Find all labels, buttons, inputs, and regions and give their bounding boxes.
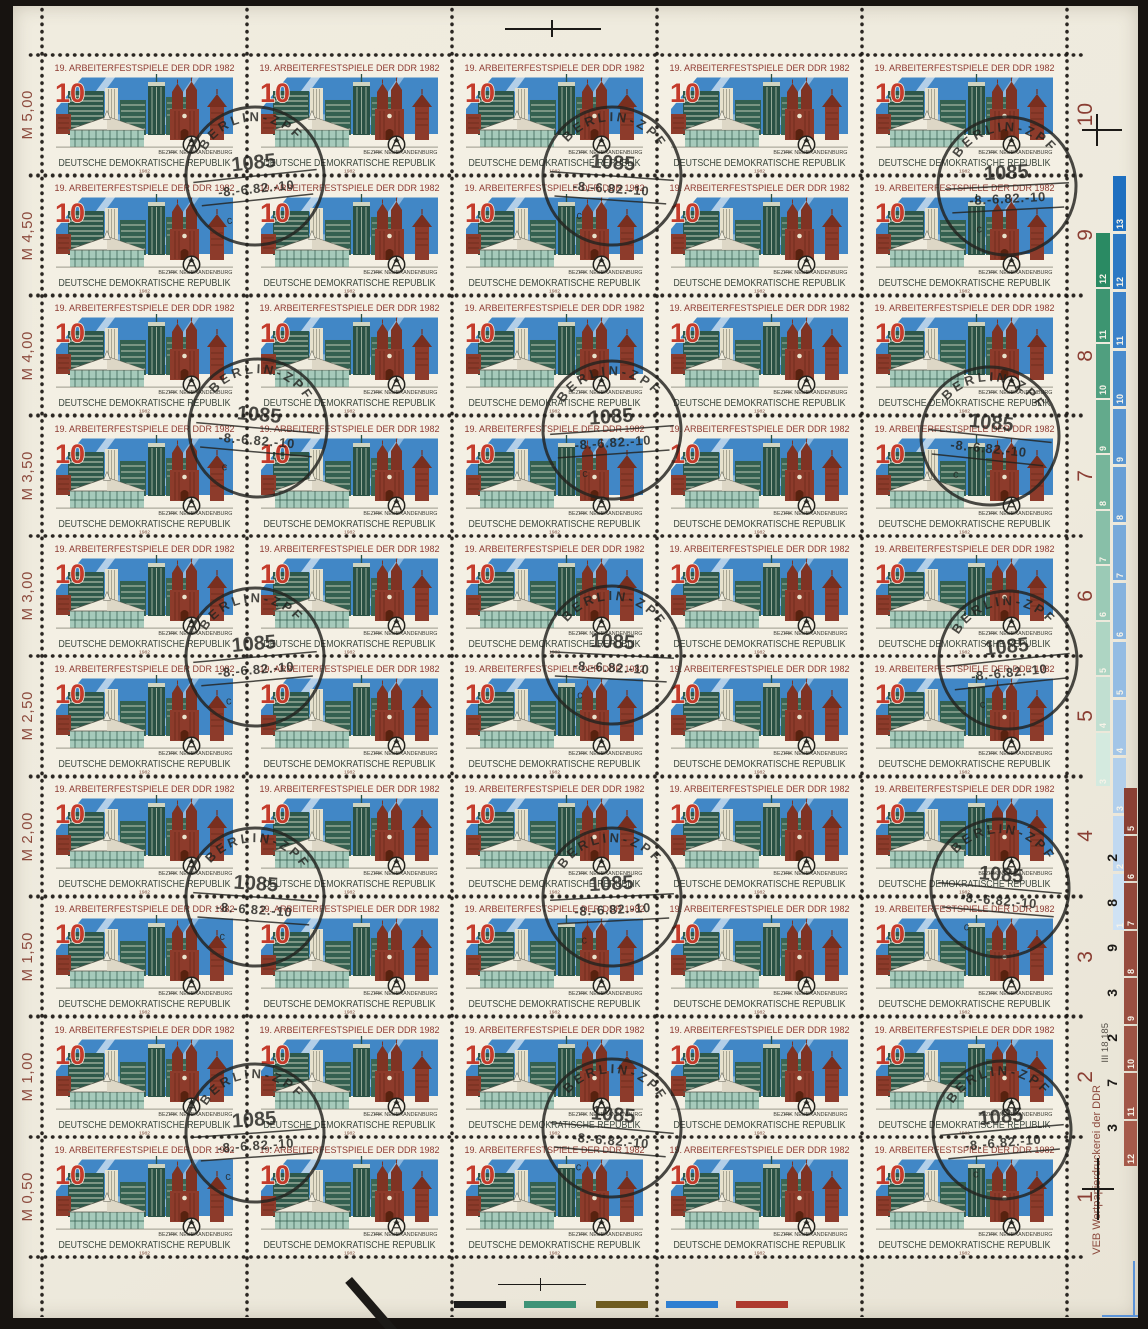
blue-control-strip-number: 3 [1115, 806, 1125, 811]
postmark-art: BERLIN-ZPF 1085 -8.-6.82.-10 c [921, 1049, 1084, 1212]
stamp-denomination: 10 [55, 919, 85, 949]
stamp-district-label: BEZIRK NEUBRANDENBURG [773, 751, 847, 757]
postmark-date: -8.-6.82.-10 [969, 189, 1046, 208]
margin-value-label: M 4,50 [14, 175, 40, 295]
red-control-strip-segment: 9 [1124, 978, 1137, 1024]
stamp-denomination: 10 [465, 198, 495, 228]
color-bar-black [454, 1301, 506, 1308]
registration-cross-bar [551, 20, 553, 37]
green-control-strip-number: 11 [1098, 330, 1108, 340]
postmark-art: BERLIN-ZPF 1085 -8.-6.82.-10 c [531, 1047, 694, 1210]
row-number-text: 8 [1074, 350, 1098, 362]
stamp-country-label: DEUTSCHE DEMOKRATISCHE REPUBLIK [59, 1240, 231, 1251]
stamp-denomination: 10 [465, 799, 495, 829]
postmark-date: -8.-6.82.-10 [217, 659, 295, 681]
margin-value-text: M 5,00 [19, 90, 36, 139]
postmark-town: BERLIN-ZPF [558, 105, 672, 151]
press-digit-text: 7 [1104, 1079, 1120, 1087]
postmark-town: BERLIN-ZPF [552, 359, 666, 405]
stamp-title: 19. ARBEITERFESTSPIELE DER DDR 1982 [465, 783, 645, 794]
blue-control-strip-segment: 9 [1113, 409, 1126, 464]
postmark-town: BERLIN-ZPF [553, 827, 667, 872]
postmark-postcode: 1085 [590, 151, 636, 176]
postmark-index-letter: c [976, 223, 983, 235]
stamp-denomination: 10 [55, 198, 85, 228]
postmark-index-letter: c [973, 1168, 980, 1180]
green-control-strip-segment: 9 [1096, 400, 1110, 454]
postmark-town-text: BERLIN-ZPF [194, 585, 309, 633]
margin-value-label: M 1,50 [14, 896, 40, 1016]
postmark-cancellation: BERLIN-ZPF 1085 -8.-6.82.-10 c [173, 94, 338, 259]
postmark-town: BERLIN-ZPF [201, 826, 315, 872]
stamp-country-label: DEUTSCHE DEMOKRATISCHE REPUBLIK [469, 759, 641, 770]
margin-value-label: M 1,00 [14, 1017, 40, 1137]
stamp: 19. ARBEITERFESTSPIELE DER DDR 1982 [657, 1137, 862, 1257]
stamp-denomination: 10 [55, 679, 85, 709]
postmark-cancellation: BERLIN-ZPF 1085 -8.-6.82.-10 c [926, 578, 1091, 743]
stamp-title: 19. ARBEITERFESTSPIELE DER DDR 1982 [875, 543, 1055, 554]
postmark-index-letter: c [577, 689, 584, 701]
row-number-text: 3 [1074, 951, 1098, 963]
stamp-title: 19. ARBEITERFESTSPIELE DER DDR 1982 [875, 1024, 1055, 1035]
postmark-art: BERLIN-ZPF 1085 -8.-6.82.-10 c [926, 578, 1091, 743]
red-control-strip-number: 5 [1126, 826, 1136, 831]
green-control-strip-segment: 6 [1096, 566, 1110, 620]
postmark-postcode: 1085 [231, 631, 277, 657]
postmark-postcode: 1085 [983, 634, 1030, 661]
red-control-strip-number: 12 [1126, 1154, 1136, 1164]
stamp-country-label: DEUTSCHE DEMOKRATISCHE REPUBLIK [674, 759, 846, 770]
press-digit-text: 2 [1104, 1034, 1120, 1042]
stamp-district-label: BEZIRK NEUBRANDENBURG [978, 751, 1052, 757]
stamp-denomination: 10 [55, 559, 85, 589]
margin-value-text: M 2,50 [19, 691, 36, 740]
stamp-country-label: DEUTSCHE DEMOKRATISCHE REPUBLIK [59, 999, 231, 1010]
postmark-index-letter: c [226, 695, 233, 707]
margin-value-text: M 1,00 [19, 1052, 36, 1101]
red-control-strip-number: 8 [1126, 969, 1136, 974]
stamp-country-label: DEUTSCHE DEMOKRATISCHE REPUBLIK [469, 278, 641, 289]
stamp-denomination: 10 [55, 318, 85, 348]
stamp-denomination: 10 [875, 318, 905, 348]
postmark-town: BERLIN-ZPF [559, 1056, 674, 1104]
perforation-line-horizontal [27, 1013, 1085, 1020]
postmark-art: BERLIN-ZPF 1085 -8.-6.82.-10 c [173, 94, 338, 259]
green-control-strip-segment: 8 [1096, 455, 1110, 509]
postmark-postcode: 1085 [233, 872, 279, 897]
stamp-denomination: 10 [465, 318, 495, 348]
stamp-denomination: 10 [875, 799, 905, 829]
press-digit-text: 9 [1104, 944, 1120, 952]
margin-value-text: M 3,50 [19, 451, 36, 500]
green-control-strip-segment: 3 [1096, 733, 1110, 787]
stamp-country-label: DEUTSCHE DEMOKRATISCHE REPUBLIK [674, 639, 846, 650]
margin-value-label: M 4,00 [14, 295, 40, 415]
stamp-district-label: BEZIRK NEUBRANDENBURG [773, 270, 847, 276]
perforation-line-horizontal [27, 533, 1085, 540]
stamp-title: 19. ARBEITERFESTSPIELE DER DDR 1982 [670, 1024, 850, 1035]
color-bar-olive [596, 1301, 648, 1308]
blue-control-strip-segment: 13 [1113, 176, 1126, 231]
stamp-title: 19. ARBEITERFESTSPIELE DER DDR 1982 [875, 302, 1055, 313]
stamp-district-label: BEZIRK NEUBRANDENBURG [158, 1232, 232, 1238]
postmark-postcode: 1085 [590, 630, 636, 654]
stamp-denomination: 10 [465, 679, 495, 709]
stamp-denomination: 10 [875, 78, 905, 108]
postmark-index-letter: c [576, 210, 583, 222]
postmark-town-text: BERLIN-ZPF [552, 359, 666, 405]
postmark-town-text: BERLIN-ZPF [945, 587, 1060, 637]
stamp-country-label: DEUTSCHE DEMOKRATISCHE REPUBLIK [264, 519, 436, 530]
blue-control-strip-segment: 6 [1113, 583, 1126, 638]
stamp-country-label: DEUTSCHE DEMOKRATISCHE REPUBLIK [264, 1240, 436, 1251]
stamp-cell: 19. ARBEITERFESTSPIELE DER DDR 1982 [657, 776, 862, 896]
stamp-denomination: 10 [670, 318, 700, 348]
margin-value-text: M 4,00 [19, 331, 36, 380]
postmark-date: -8.-6.82.-10 [574, 900, 651, 919]
postmark-town-text: BERLIN-ZPF [558, 585, 672, 630]
stamp-district-label: BEZIRK NEUBRANDENBURG [773, 511, 847, 517]
stamp-district-label: BEZIRK NEUBRANDENBURG [568, 991, 642, 997]
blue-control-strip-segment: 4 [1113, 700, 1126, 755]
margin-value-text: M 3,00 [19, 571, 36, 620]
stamp-country-label: DEUTSCHE DEMOKRATISCHE REPUBLIK [879, 999, 1051, 1010]
margin-value-label: M 3,50 [14, 416, 40, 536]
postmark-art: BERLIN-ZPF 1085 -8.-6.82.-10 c [532, 96, 692, 256]
stamp-country-label: DEUTSCHE DEMOKRATISCHE REPUBLIK [469, 519, 641, 530]
green-control-strip-number: 10 [1098, 385, 1108, 395]
blue-control-strip-number: 13 [1115, 219, 1125, 229]
postmark-art: BERLIN-ZPF 1085 -8.-6.82.-10 c [532, 350, 692, 510]
postmark-art: BERLIN-ZPF 1085 -8.-6.82.-10 c [928, 107, 1086, 265]
stamp-denomination: 10 [465, 1160, 495, 1190]
postmark-town-text: BERLIN-ZPF [947, 816, 1062, 864]
red-control-strip-segment: 11 [1124, 1073, 1137, 1119]
stamp-district-label: BEZIRK NEUBRANDENBURG [363, 150, 437, 156]
margin-value-label: M 3,00 [14, 536, 40, 656]
postmark-index-letter: c [582, 468, 589, 480]
stamp-cell: 19. ARBEITERFESTSPIELE DER DDR 1982 [657, 656, 862, 776]
postmark-postcode: 1085 [984, 161, 1030, 185]
stamp-title: 19. ARBEITERFESTSPIELE DER DDR 1982 [670, 783, 850, 794]
postmark-art: BERLIN-ZPF 1085 -8.-6.82.-10 c [175, 817, 335, 977]
stamp-district-label: BEZIRK NEUBRANDENBURG [568, 270, 642, 276]
blue-control-strip-segment: 11 [1113, 292, 1126, 347]
blue-control-strip-segment: 10 [1113, 351, 1126, 406]
press-digit: 7 [1104, 1070, 1120, 1096]
red-control-strip-segment: 12 [1124, 1121, 1137, 1167]
postmark-cancellation: BERLIN-ZPF 1085 -8.-6.82.-10 c [175, 817, 335, 977]
green-control-strip-segment: 12 [1096, 233, 1110, 287]
green-control-strip-number: 12 [1098, 274, 1108, 284]
registration-cross-bar [498, 1284, 586, 1285]
registration-cross-bar [505, 28, 601, 30]
postmark-art: BERLIN-ZPF 1085 -8.-6.82.-10 c [533, 818, 691, 976]
stamp-district-label: BEZIRK NEUBRANDENBURG [363, 390, 437, 396]
press-digit: 3 [1104, 1115, 1120, 1141]
postmark-town-text: BERLIN-ZPF [192, 103, 307, 153]
stamp-country-label: DEUTSCHE DEMOKRATISCHE REPUBLIK [674, 158, 846, 169]
stamp-title: 19. ARBEITERFESTSPIELE DER DDR 1982 [260, 302, 440, 313]
red-control-strip-number: 10 [1126, 1059, 1136, 1069]
stamp-cell: 19. ARBEITERFESTSPIELE DER DDR 1982 [657, 1137, 862, 1257]
postmark-date: -8.-6.82.-10 [960, 890, 1038, 912]
stamp-denomination: 10 [55, 1160, 85, 1190]
stamp-district-label: BEZIRK NEUBRANDENBURG [773, 631, 847, 637]
red-control-strip-number: 7 [1126, 921, 1136, 926]
stamp-country-label: DEUTSCHE DEMOKRATISCHE REPUBLIK [879, 759, 1051, 770]
blue-control-strip-number: 6 [1115, 632, 1125, 637]
stamp-title: 19. ARBEITERFESTSPIELE DER DDR 1982 [670, 543, 850, 554]
stamp-title: 19. ARBEITERFESTSPIELE DER DDR 1982 [260, 783, 440, 794]
stamp-title: 19. ARBEITERFESTSPIELE DER DDR 1982 [670, 903, 850, 914]
margin-value-label: M 2,00 [14, 776, 40, 896]
postmark-date: -8.-6.82.-10 [574, 432, 652, 452]
red-control-strip-number: 9 [1126, 1016, 1136, 1021]
postmark-town: BERLIN-ZPF [945, 587, 1060, 637]
blue-control-strip-number: 11 [1115, 336, 1125, 346]
stamp-title: 19. ARBEITERFESTSPIELE DER DDR 1982 [55, 783, 235, 794]
margin-value-text: M 1,50 [19, 932, 36, 981]
row-number-text: 6 [1074, 590, 1098, 602]
green-control-strip-number: 4 [1098, 723, 1108, 728]
postmark-postcode: 1085 [589, 872, 635, 896]
postmark-town-text: BERLIN-ZPF [937, 363, 1052, 413]
stamp: 19. ARBEITERFESTSPIELE DER DDR 1982 [657, 776, 862, 896]
stamp-sheet-scan: 19. ARBEITERFESTSPIELE DER DDR 1982 [0, 0, 1148, 1329]
press-digit: 8 [1104, 890, 1120, 916]
postmark-date: -8.-6.82.-10 [572, 178, 650, 198]
blue-control-strip-number: 9 [1115, 457, 1125, 462]
postmark-cancellation: BERLIN-ZPF 1085 -8.-6.82.-10 c [533, 576, 691, 734]
stamp-country-label: DEUTSCHE DEMOKRATISCHE REPUBLIK [264, 999, 436, 1010]
perforation-line-vertical [449, 6, 456, 1317]
stamp: 19. ARBEITERFESTSPIELE DER DDR 1982 [657, 295, 862, 415]
row-number-label: 3 [1074, 896, 1098, 1016]
stamp-denomination: 10 [875, 919, 905, 949]
red-control-strip-number: 6 [1126, 874, 1136, 879]
postmark-art: BERLIN-ZPF 1085 -8.-6.82.-10 c [908, 354, 1073, 519]
stamp-district-label: BEZIRK NEUBRANDENBURG [568, 511, 642, 517]
stamp-district-label: BEZIRK NEUBRANDENBURG [363, 1112, 437, 1118]
press-digit: 2 [1104, 845, 1120, 871]
red-control-strip-segment: 5 [1124, 788, 1137, 834]
postmark-art: BERLIN-ZPF 1085 -8.-6.82.-10 c [533, 576, 691, 734]
stamp-denomination: 10 [55, 1040, 85, 1070]
postmark-town: BERLIN-ZPF [558, 585, 672, 630]
red-control-strip-number: 11 [1126, 1107, 1136, 1117]
stamp-country-label: DEUTSCHE DEMOKRATISCHE REPUBLIK [674, 1240, 846, 1251]
margin-value-label: M 0,50 [14, 1137, 40, 1257]
stamp-title: 19. ARBEITERFESTSPIELE DER DDR 1982 [260, 62, 440, 73]
stamp-district-label: BEZIRK NEUBRANDENBURG [158, 991, 232, 997]
postmark-index-letter: c [575, 1161, 582, 1173]
green-control-strip-number: 9 [1098, 446, 1108, 451]
postmark-art: BERLIN-ZPF 1085 -8.-6.82.-10 c [919, 807, 1082, 970]
margin-value-label: M 2,50 [14, 656, 40, 776]
postmark-town-text: BERLIN-ZPF [205, 356, 320, 404]
green-control-strip-segment: 4 [1096, 677, 1110, 731]
postmark-index-letter: c [219, 931, 226, 943]
stamp-denomination: 10 [875, 198, 905, 228]
postmark-art: BERLIN-ZPF 1085 -8.-6.82.-10 c [175, 1053, 335, 1213]
blue-control-strip-segment: 12 [1113, 234, 1126, 289]
perforation-line-horizontal [27, 773, 1085, 780]
postmark-postcode: 1085 [590, 1102, 636, 1128]
postmark-art: BERLIN-ZPF 1085 -8.-6.82.-10 c [174, 576, 337, 739]
stamp-district-label: BEZIRK NEUBRANDENBURG [363, 1232, 437, 1238]
red-control-strip-segment: 7 [1124, 883, 1137, 929]
registration-cross-bar [540, 1278, 541, 1291]
stamp-country-label: DEUTSCHE DEMOKRATISCHE REPUBLIK [674, 999, 846, 1010]
perforation-line-vertical [859, 6, 866, 1317]
stamp-cell: 19. ARBEITERFESTSPIELE DER DDR 1982 [657, 295, 862, 415]
postmark-cancellation: BERLIN-ZPF 1085 -8.-6.82.-10 c [177, 347, 340, 510]
stamp-title: 19. ARBEITERFESTSPIELE DER DDR 1982 [465, 1024, 645, 1035]
stamp-denomination: 10 [875, 1040, 905, 1070]
postmark-postcode: 1085 [230, 150, 277, 177]
stamp-denomination: 10 [465, 78, 495, 108]
stamp-title: 19. ARBEITERFESTSPIELE DER DDR 1982 [55, 543, 235, 554]
postmark-index-letter: c [226, 215, 233, 228]
postmark-cancellation: BERLIN-ZPF 1085 -8.-6.82.-10 c [919, 807, 1082, 970]
stamp-district-label: BEZIRK NEUBRANDENBURG [568, 1232, 642, 1238]
stamp-title: 19. ARBEITERFESTSPIELE DER DDR 1982 [670, 1144, 850, 1155]
stamp-title: 19. ARBEITERFESTSPIELE DER DDR 1982 [670, 182, 850, 193]
postmark-town: BERLIN-ZPF [194, 585, 309, 633]
postmark-index-letter: c [221, 461, 228, 473]
postmark-cancellation: BERLIN-ZPF 1085 -8.-6.82.-10 c [174, 576, 337, 739]
red-control-strip-segment: 6 [1124, 836, 1137, 882]
postmark-cancellation: BERLIN-ZPF 1085 -8.-6.82.-10 c [533, 818, 691, 976]
stamp-title: 19. ARBEITERFESTSPIELE DER DDR 1982 [465, 62, 645, 73]
stamp-district-label: BEZIRK NEUBRANDENBURG [773, 1112, 847, 1118]
stamp-title: 19. ARBEITERFESTSPIELE DER DDR 1982 [465, 543, 645, 554]
postmark-town-text: BERLIN-ZPF [195, 1062, 309, 1108]
blue-control-strip-number: 1 [1115, 923, 1125, 928]
stamp-district-label: BEZIRK NEUBRANDENBURG [363, 871, 437, 877]
postmark-date: -8.-6.82.-10 [217, 1135, 295, 1155]
stamp-cell: 19. ARBEITERFESTSPIELE DER DDR 1982 [657, 175, 862, 295]
green-control-strip-number: 6 [1098, 612, 1108, 617]
stamp-district-label: BEZIRK NEUBRANDENBURG [568, 751, 642, 757]
press-digit-text: 8 [1104, 899, 1120, 907]
row-number-label: 7 [1074, 416, 1098, 536]
postmark-town-text: BERLIN-ZPF [201, 826, 315, 872]
color-bar-green [524, 1301, 576, 1308]
stamp-district-label: BEZIRK NEUBRANDENBURG [158, 751, 232, 757]
stamp-district-label: BEZIRK NEUBRANDENBURG [363, 270, 437, 276]
red-control-strip-segment: 10 [1124, 1026, 1137, 1072]
postmark-date: -8.-6.82.-10 [218, 430, 296, 452]
stamp-district-label: BEZIRK NEUBRANDENBURG [773, 991, 847, 997]
postmark-postcode: 1085 [978, 1104, 1024, 1130]
postmark-date: -8.-6.82.-10 [964, 1132, 1042, 1154]
postmark-cancellation: BERLIN-ZPF 1085 -8.-6.82.-10 c [928, 107, 1086, 265]
stamp-title: 19. ARBEITERFESTSPIELE DER DDR 1982 [465, 302, 645, 313]
stamp-title: 19. ARBEITERFESTSPIELE DER DDR 1982 [670, 62, 850, 73]
stamp-district-label: BEZIRK NEUBRANDENBURG [363, 631, 437, 637]
stamp-denomination: 10 [465, 439, 495, 469]
stamp-country-label: DEUTSCHE DEMOKRATISCHE REPUBLIK [264, 278, 436, 289]
blue-control-strip-number: 12 [1115, 277, 1125, 287]
green-control-strip-segment: 7 [1096, 511, 1110, 565]
blue-control-strip-number: 8 [1115, 515, 1125, 520]
stamp-denomination: 10 [465, 919, 495, 949]
stamp-district-label: BEZIRK NEUBRANDENBURG [773, 390, 847, 396]
postmark-town: BERLIN-ZPF [195, 1062, 309, 1108]
perforation-line-vertical [39, 6, 46, 1317]
postmark-date: -8.-6.82.-10 [572, 1130, 650, 1152]
stamp-country-label: DEUTSCHE DEMOKRATISCHE REPUBLIK [469, 999, 641, 1010]
postmark-postcode: 1085 [978, 862, 1024, 888]
postmark-town-text: BERLIN-ZPF [941, 1058, 1056, 1106]
margin-value-text: M 0,50 [19, 1172, 36, 1221]
stamp-country-label: DEUTSCHE DEMOKRATISCHE REPUBLIK [674, 1120, 846, 1131]
registration-cross-bar [1082, 129, 1122, 131]
blue-control-strip-number: 5 [1115, 690, 1125, 695]
press-digit-text: 2 [1104, 854, 1120, 862]
postmark-town: BERLIN-ZPF [941, 1058, 1056, 1106]
stamp-district-label: BEZIRK NEUBRANDENBURG [363, 991, 437, 997]
blue-control-strip-segment: 7 [1113, 525, 1126, 580]
blue-control-strip-number: 10 [1115, 394, 1125, 404]
stamp-title: 19. ARBEITERFESTSPIELE DER DDR 1982 [260, 543, 440, 554]
perforation-line-horizontal [27, 52, 1085, 59]
postmark-cancellation: BERLIN-ZPF 1085 -8.-6.82.-10 c [921, 1049, 1084, 1212]
stamp-denomination: 10 [670, 78, 700, 108]
color-bar-red [736, 1301, 788, 1308]
stamp-country-label: DEUTSCHE DEMOKRATISCHE REPUBLIK [674, 278, 846, 289]
postmark-cancellation: BERLIN-ZPF 1085 -8.-6.82.-10 c [908, 354, 1073, 519]
stamp-country-label: DEUTSCHE DEMOKRATISCHE REPUBLIK [674, 398, 846, 409]
postmark-index-letter: c [581, 934, 588, 946]
postmark-postcode: 1085 [588, 405, 634, 430]
stamp-denomination: 10 [875, 439, 905, 469]
stamp-denomination: 10 [260, 318, 290, 348]
corner-bracket [1133, 1261, 1135, 1317]
postmark-index-letter: c [225, 1171, 232, 1183]
stamp: 19. ARBEITERFESTSPIELE DER DDR 1982 [657, 175, 862, 295]
stamp-title: 19. ARBEITERFESTSPIELE DER DDR 1982 [670, 663, 850, 674]
stamp-title: 19. ARBEITERFESTSPIELE DER DDR 1982 [55, 302, 235, 313]
stamp-title: 19. ARBEITERFESTSPIELE DER DDR 1982 [670, 423, 850, 434]
postmark-cancellation: BERLIN-ZPF 1085 -8.-6.82.-10 c [175, 1053, 335, 1213]
green-control-strip-segment: 10 [1096, 344, 1110, 398]
blue-control-strip-segment: 8 [1113, 467, 1126, 522]
postmark-town: BERLIN-ZPF [205, 356, 320, 404]
postmark-index-letter: c [963, 921, 970, 933]
stamp-country-label: DEUTSCHE DEMOKRATISCHE REPUBLIK [879, 1240, 1051, 1251]
margin-value-label: M 5,00 [14, 55, 40, 175]
postmark-date: -8.-6.82.-10 [215, 899, 293, 919]
postmark-date: -8.-6.82.-10 [573, 658, 650, 677]
stamp-denomination: 10 [465, 1040, 495, 1070]
stamp-title: 19. ARBEITERFESTSPIELE DER DDR 1982 [55, 62, 235, 73]
stamp-country-label: DEUTSCHE DEMOKRATISCHE REPUBLIK [59, 759, 231, 770]
row-number-text: 7 [1074, 470, 1098, 482]
stamp-denomination: 10 [875, 1160, 905, 1190]
postmark-town-text: BERLIN-ZPF [948, 116, 1062, 161]
postmark-town: BERLIN-ZPF [192, 103, 307, 153]
postmark-postcode: 1085 [968, 410, 1015, 437]
stamp-district-label: BEZIRK NEUBRANDENBURG [773, 150, 847, 156]
stamp-country-label: DEUTSCHE DEMOKRATISCHE REPUBLIK [264, 759, 436, 770]
press-digit: 9 [1104, 935, 1120, 961]
stamp-district-label: BEZIRK NEUBRANDENBURG [363, 751, 437, 757]
green-control-strip-number: 3 [1098, 779, 1108, 784]
postmark-town-text: BERLIN-ZPF [558, 105, 672, 151]
